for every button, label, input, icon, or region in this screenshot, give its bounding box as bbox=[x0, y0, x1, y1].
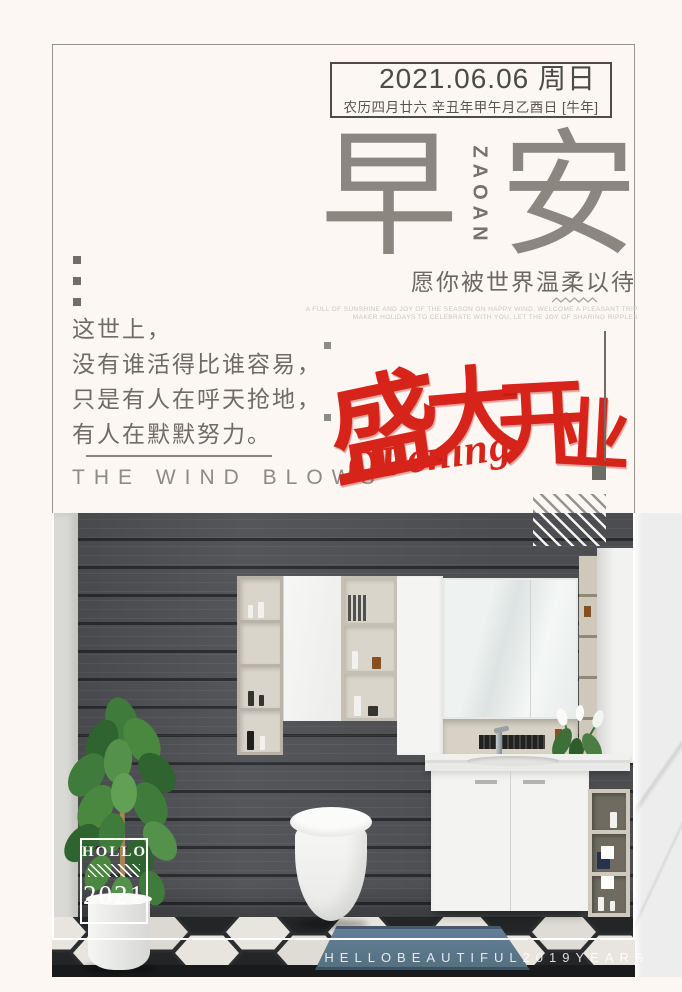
date-box: 2021.06.06 周日 农历四月廿六 辛丑年甲午月乙酉日 [牛年] bbox=[330, 62, 612, 118]
faucet bbox=[496, 731, 502, 756]
caption-line-1: A FULL OF SUNSHINE AND JOY OF THE SEASON… bbox=[306, 306, 638, 314]
badge-hatch-band bbox=[88, 864, 140, 877]
marble-edge-highlight bbox=[635, 513, 642, 977]
photo-frame-left bbox=[52, 513, 54, 940]
deco-square-2 bbox=[73, 277, 81, 285]
open-shelf-middle bbox=[341, 576, 397, 721]
bathroom-photo: HOLLO 2021 HELLOBEAUTIFUL2019YEARS bbox=[52, 513, 682, 977]
perfume-bottle bbox=[372, 657, 381, 669]
photo-watermark: HELLOBEAUTIFUL2019YEARS bbox=[287, 950, 682, 965]
sink-basin bbox=[467, 756, 559, 766]
poem-divider-line bbox=[86, 455, 272, 457]
shelf-cell bbox=[240, 711, 280, 752]
caption-line-2: MAKER HOLIDAYS TO CELEBRATE WITH YOU, LE… bbox=[306, 314, 638, 322]
door-handle bbox=[523, 780, 545, 784]
hatch-pattern-gray bbox=[533, 494, 606, 513]
white-deco-square-2 bbox=[601, 876, 614, 889]
shelf-cell bbox=[240, 667, 280, 708]
masthead-title: 早 ZAOAN 安 bbox=[320, 120, 650, 272]
badge-year: 2021 bbox=[82, 880, 146, 910]
shelf-cell bbox=[344, 674, 394, 718]
year-badge: HOLLO 2021 bbox=[80, 838, 148, 924]
photo-frame-right bbox=[633, 513, 635, 940]
deco-micro-square-1 bbox=[324, 342, 331, 349]
cosmetic-bottle bbox=[352, 651, 358, 669]
cosmetic-bottle bbox=[610, 901, 615, 911]
shelf-cell bbox=[344, 579, 394, 623]
blessing-text: 愿你被世界温柔以待 bbox=[411, 263, 636, 297]
poem-line-2: 没有谁活得比谁容易， bbox=[72, 347, 322, 382]
wall-hung-toilet bbox=[288, 807, 376, 931]
amber-bottle bbox=[584, 606, 591, 617]
cosmetic-bottle bbox=[354, 696, 361, 716]
shelf-cell bbox=[240, 579, 280, 620]
vertical-label-wrap: ZAOAN bbox=[458, 121, 500, 271]
open-shelf-left bbox=[237, 576, 283, 755]
poster-canvas: 2021.06.06 周日 农历四月廿六 辛丑年甲午月乙酉日 [牛年] 早 ZA… bbox=[0, 0, 682, 992]
poem-block: 这世上， 没有谁活得比谁容易， 只是有人在呼天抢地， 有人在默默努力。 bbox=[72, 312, 322, 452]
blessing-caption: A FULL OF SUNSHINE AND JOY OF THE SEASON… bbox=[306, 306, 638, 322]
poem-line-1: 这世上， bbox=[72, 312, 322, 347]
hatch-pattern-white bbox=[533, 513, 606, 546]
cabinet-door-white-1 bbox=[283, 576, 341, 721]
title-char-an: 安 bbox=[500, 123, 638, 269]
books bbox=[348, 595, 368, 621]
deco-vertical-line bbox=[604, 331, 606, 461]
white-deco-square-1 bbox=[601, 846, 614, 859]
cosmetic-bottle bbox=[598, 897, 604, 911]
poem-line-3: 只是有人在呼天抢地， bbox=[72, 382, 322, 417]
grand-opening-calligraphy: 盛 大 开 业 OPening bbox=[325, 330, 625, 495]
cabinet-door-white-2 bbox=[397, 576, 443, 755]
marble-wall-right bbox=[635, 513, 682, 977]
poem-line-4: 有人在默默努力。 bbox=[72, 417, 322, 452]
cup bbox=[368, 706, 378, 716]
vanity-cabinet bbox=[431, 771, 589, 911]
cosmetic-bottle bbox=[248, 691, 254, 706]
deco-square-right bbox=[592, 466, 606, 480]
cosmetic-bottle bbox=[610, 812, 617, 828]
cosmetic-bottle bbox=[247, 731, 254, 750]
lunar-date-text: 农历四月廿六 辛丑年甲午月乙酉日 [牛年] bbox=[332, 96, 610, 116]
badge-title: HOLLO bbox=[82, 840, 146, 861]
toilet-lid bbox=[290, 807, 372, 837]
door-handle bbox=[475, 780, 497, 784]
mirror-cabinet bbox=[443, 578, 578, 719]
vertical-zaoan-text: ZAOAN bbox=[468, 145, 491, 246]
cosmetic-bottle bbox=[259, 695, 264, 706]
photo-frame-bottom bbox=[52, 938, 635, 940]
shelf-cell bbox=[240, 623, 280, 664]
wave-underline bbox=[552, 296, 598, 304]
title-char-zao: 早 bbox=[320, 123, 458, 269]
brush-set bbox=[479, 735, 545, 749]
date-text: 2021.06.06 周日 bbox=[332, 64, 610, 94]
deco-square-1 bbox=[73, 256, 81, 264]
shelf-cell bbox=[592, 793, 626, 830]
cosmetic-bottle bbox=[258, 602, 264, 618]
cosmetic-bottle bbox=[260, 736, 265, 750]
cosmetic-bottle bbox=[248, 605, 253, 618]
deco-square-3 bbox=[73, 298, 81, 306]
deco-micro-square-2 bbox=[324, 414, 331, 421]
vanity-countertop bbox=[425, 754, 630, 771]
shelf-cell bbox=[344, 626, 394, 670]
